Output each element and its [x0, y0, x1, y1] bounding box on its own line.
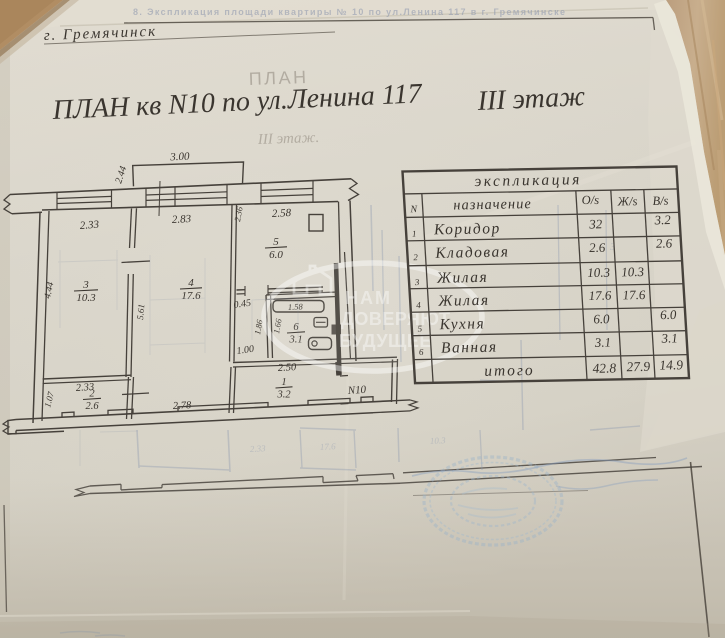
- svg-text:2: 2: [89, 389, 95, 400]
- svg-text:17.6: 17.6: [588, 288, 612, 303]
- svg-text:3.00: 3.00: [169, 151, 190, 164]
- svg-text:3: 3: [414, 277, 421, 287]
- svg-text:3.2: 3.2: [276, 390, 291, 401]
- svg-text:2.6: 2.6: [85, 401, 99, 412]
- svg-text:6.0: 6.0: [593, 311, 611, 326]
- svg-text:2.50: 2.50: [278, 362, 298, 374]
- svg-text:27.9: 27.9: [626, 359, 651, 374]
- svg-text:5.61: 5.61: [135, 304, 146, 321]
- svg-text:В/s: В/s: [652, 194, 669, 208]
- svg-text:НАМ: НАМ: [345, 288, 392, 308]
- svg-text:2.6: 2.6: [655, 236, 673, 251]
- svg-text:назначение: назначение: [453, 196, 532, 213]
- svg-text:3.2: 3.2: [653, 212, 672, 227]
- svg-text:17.6: 17.6: [622, 287, 646, 302]
- svg-text:10.3: 10.3: [76, 292, 96, 304]
- svg-text:32: 32: [588, 216, 603, 231]
- svg-text:2.33: 2.33: [79, 219, 100, 232]
- svg-text:Коридор: Коридор: [432, 220, 501, 238]
- svg-text:10.3: 10.3: [621, 264, 645, 279]
- svg-text:8. Экспликация площади квартир: 8. Экспликация площади квартиры № 10 по …: [133, 7, 565, 17]
- svg-text:1: 1: [281, 377, 286, 388]
- svg-text:14.9: 14.9: [659, 357, 684, 372]
- svg-text:2.58: 2.58: [272, 207, 292, 220]
- svg-text:10.3: 10.3: [587, 265, 611, 280]
- svg-text:итого: итого: [484, 362, 535, 380]
- svg-text:экспликация: экспликация: [474, 171, 582, 190]
- svg-text:17.6: 17.6: [181, 290, 201, 302]
- svg-text:6.0: 6.0: [660, 307, 678, 322]
- svg-text:1: 1: [412, 229, 417, 239]
- svg-text:Ж/s: Ж/s: [616, 194, 638, 208]
- svg-text:3: 3: [82, 279, 89, 291]
- svg-text:Кладовая: Кладовая: [434, 243, 510, 261]
- svg-text:3.1: 3.1: [660, 330, 678, 345]
- svg-text:III этаж.: III этаж.: [257, 130, 320, 148]
- svg-text:42.8: 42.8: [592, 360, 617, 375]
- svg-text:5: 5: [273, 236, 279, 248]
- svg-text:2.83: 2.83: [172, 213, 192, 226]
- svg-text:2.6: 2.6: [589, 240, 607, 255]
- svg-text:3.1: 3.1: [593, 335, 611, 350]
- svg-text:Жилая: Жилая: [437, 292, 490, 310]
- svg-text:10.3: 10.3: [430, 435, 447, 446]
- svg-text:Ванная: Ванная: [441, 339, 499, 357]
- svg-text:О/s: О/s: [581, 193, 599, 207]
- svg-text:III этаж: III этаж: [476, 81, 586, 117]
- svg-text:Кухня: Кухня: [438, 315, 486, 333]
- svg-text:4: 4: [188, 277, 194, 289]
- svg-text:17.6: 17.6: [320, 441, 337, 452]
- svg-text:N10: N10: [346, 384, 367, 397]
- svg-text:Жилая: Жилая: [435, 269, 488, 287]
- svg-text:2.33: 2.33: [250, 443, 267, 454]
- svg-text:6.0: 6.0: [269, 249, 283, 261]
